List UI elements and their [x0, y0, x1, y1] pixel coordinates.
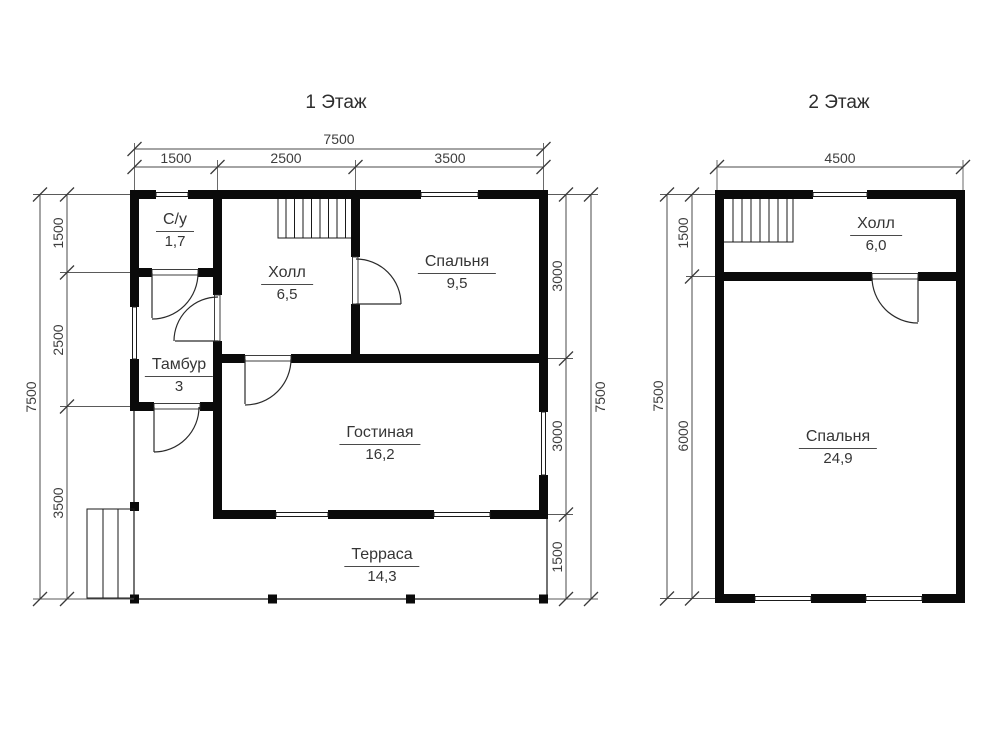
room-area: 16,2 — [339, 445, 420, 464]
window-icon — [434, 510, 490, 519]
dim-f1-left-seg1: 1500 — [50, 217, 66, 248]
room-label-bedroom-f1: Спальня 9,5 — [418, 253, 496, 293]
f2-wall-bottom — [715, 594, 965, 603]
door-icon-syu — [152, 268, 198, 319]
window-icon — [539, 412, 548, 475]
room-label-hall-f1: Холл 6,5 — [261, 264, 313, 304]
room-area: 24,9 — [799, 449, 877, 468]
dim-f2-left-total: 7500 — [650, 380, 666, 411]
room-label-bedroom-f2: Спальня 24,9 — [799, 428, 877, 468]
stairs-icon-floor2 — [724, 199, 793, 242]
terrace-post — [406, 595, 415, 604]
dim-f1-left-total: 7500 — [23, 381, 39, 412]
dim-f2-top-total: 4500 — [824, 150, 855, 166]
room-area: 14,3 — [344, 567, 419, 586]
room-name: Терраса — [344, 546, 419, 567]
floor2-plan — [660, 160, 970, 606]
room-label-tambur: Тамбур 3 — [145, 356, 213, 396]
dim-f2-left-seg2: 6000 — [675, 420, 691, 451]
dim-f1-left-seg3: 3500 — [50, 487, 66, 518]
window-icon — [813, 190, 867, 199]
window-icon — [130, 307, 139, 359]
dim-f1-top-seg1: 1500 — [160, 150, 191, 166]
door-icon-hall-bedroom — [351, 257, 401, 304]
room-label-syu: С/у 1,7 — [156, 211, 194, 251]
room-name: Холл — [261, 264, 313, 285]
room-label-hall-f2: Холл 6,0 — [850, 215, 902, 255]
door-icon-hall-bedroom-f2 — [872, 272, 918, 323]
floor2-title: 2 Этаж — [808, 92, 869, 114]
room-label-terrace: Терраса 14,3 — [344, 546, 419, 586]
terrace-post — [268, 595, 277, 604]
dim-f1-top-seg2: 2500 — [270, 150, 301, 166]
room-area: 6,0 — [850, 236, 902, 255]
f1-wall-living-bottom — [213, 510, 548, 519]
window-icon — [276, 510, 328, 519]
room-name: Тамбур — [145, 356, 213, 377]
dim-f1-left-seg2: 2500 — [50, 324, 66, 355]
room-area: 9,5 — [418, 274, 496, 293]
room-name: Гостиная — [339, 424, 420, 445]
room-area: 6,5 — [261, 285, 313, 304]
room-name: Холл — [850, 215, 902, 236]
dim-f2-left-seg1: 1500 — [675, 217, 691, 248]
floor2-dimensions — [660, 160, 970, 606]
f1-wall-left — [130, 190, 139, 411]
dim-f1-right-seg2: 3000 — [549, 420, 565, 451]
terrace-post — [539, 595, 548, 604]
room-name: С/у — [156, 211, 194, 232]
floorplan-page: 1 Этаж 2 Этаж С/у 1,7 Холл 6,5 Спальня 9… — [0, 0, 1000, 750]
room-label-living: Гостиная 16,2 — [339, 424, 420, 464]
dim-f1-top-total: 7500 — [323, 131, 354, 147]
floor1-title: 1 Этаж — [305, 92, 366, 114]
f2-wall-right — [956, 190, 965, 603]
window-icon — [421, 190, 478, 199]
window-icon — [156, 190, 188, 199]
dim-f1-right-total: 7500 — [592, 381, 608, 412]
floor2-walls — [715, 190, 965, 603]
dim-f1-right-seg3: 1500 — [549, 541, 565, 572]
f1-wall-top — [130, 190, 548, 199]
f2-wall-hall-bedroom — [715, 272, 965, 281]
stairs-icon-floor1 — [278, 199, 351, 238]
dim-f1-top-seg3: 3500 — [434, 150, 465, 166]
dim-f1-right-seg1: 3000 — [549, 260, 565, 291]
room-name: Спальня — [799, 428, 877, 449]
floor1-plan — [33, 142, 598, 606]
floor2-doors — [872, 272, 918, 323]
window-icon — [755, 594, 811, 603]
f2-wall-left — [715, 190, 724, 603]
door-icon-tambur-terrace — [154, 402, 200, 452]
room-area: 1,7 — [156, 232, 194, 251]
door-icon-hall-living — [245, 354, 291, 405]
room-name: Спальня — [418, 253, 496, 274]
entry-steps-icon — [87, 509, 134, 598]
room-area: 3 — [145, 377, 213, 396]
window-icon — [866, 594, 922, 603]
door-icon-tambur-hall — [174, 295, 222, 341]
